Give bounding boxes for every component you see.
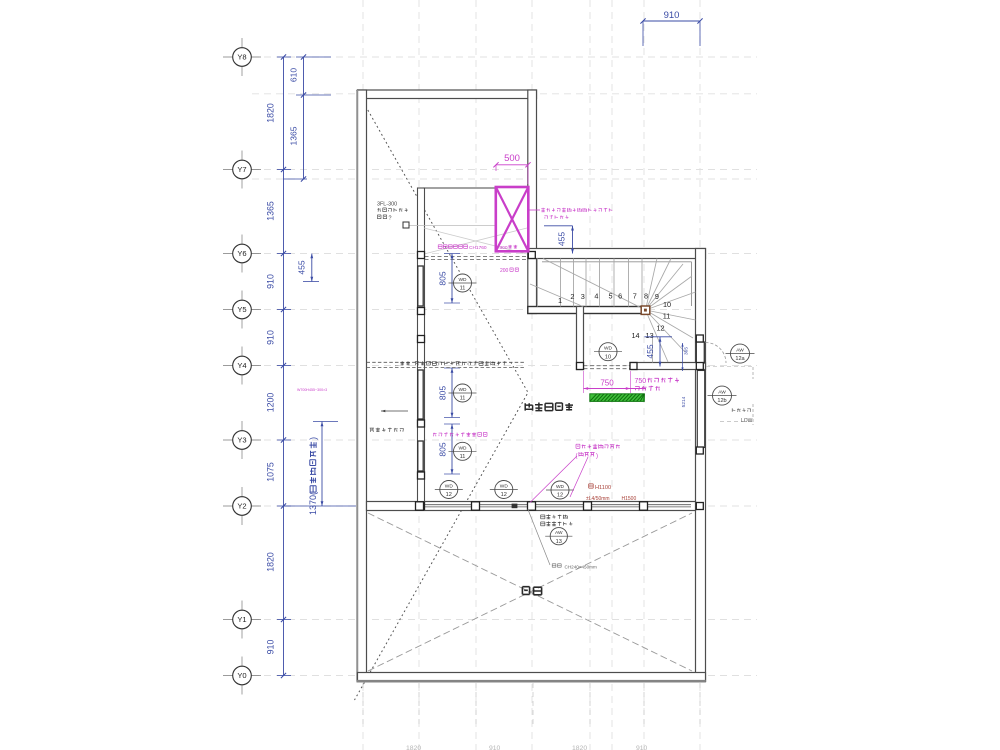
svg-text:H1100: H1100 [595, 485, 611, 491]
svg-text:13: 13 [556, 539, 562, 545]
svg-text:4: 4 [594, 292, 598, 301]
svg-text:1075: 1075 [266, 462, 276, 482]
svg-text:CH1760: CH1760 [469, 245, 487, 251]
svg-text:): ) [308, 437, 318, 440]
svg-text:1200: 1200 [266, 393, 276, 413]
svg-text:1365: 1365 [289, 126, 299, 145]
svg-text:WD: WD [459, 387, 468, 393]
svg-text:WD: WD [556, 484, 565, 490]
svg-text:6: 6 [618, 292, 622, 301]
svg-text:2: 2 [570, 292, 574, 301]
svg-text:805: 805 [438, 442, 448, 456]
svg-text:610: 610 [289, 68, 299, 82]
svg-text:805: 805 [438, 271, 448, 285]
svg-text:11: 11 [663, 312, 671, 321]
svg-text:(: ( [576, 454, 578, 460]
svg-text:10: 10 [605, 354, 611, 360]
svg-text:11: 11 [460, 454, 466, 460]
svg-text:WD: WD [500, 484, 509, 490]
svg-text:WD: WD [459, 445, 468, 451]
svg-text:12a: 12a [735, 356, 745, 362]
svg-text:5214: 5214 [681, 396, 687, 407]
svg-text:1820: 1820 [266, 103, 276, 123]
svg-text:910: 910 [266, 640, 276, 655]
svg-text:Y1: Y1 [237, 615, 246, 624]
svg-text:750: 750 [600, 379, 614, 388]
svg-text:13: 13 [646, 331, 654, 340]
svg-text:AW: AW [555, 530, 563, 536]
svg-text:300: 300 [500, 245, 508, 251]
svg-text:WD: WD [445, 484, 454, 490]
svg-text:±L4/50mm: ±L4/50mm [586, 496, 610, 502]
svg-text:365: 365 [684, 347, 690, 355]
svg-text:14: 14 [631, 331, 639, 340]
svg-text:910: 910 [489, 745, 501, 750]
svg-text:200: 200 [500, 268, 509, 274]
svg-text:1820: 1820 [406, 745, 421, 750]
svg-text:12b: 12b [717, 398, 726, 404]
svg-text:LOW: LOW [741, 418, 753, 424]
svg-text:Y2: Y2 [237, 502, 246, 511]
svg-text:W700H455~300×3: W700H455~300×3 [297, 388, 327, 392]
svg-text:455: 455 [557, 232, 567, 246]
svg-text:12: 12 [501, 492, 507, 498]
svg-text:11: 11 [460, 286, 466, 292]
svg-text:3: 3 [581, 292, 585, 301]
svg-text:H1500: H1500 [622, 496, 637, 502]
svg-text:10: 10 [663, 300, 671, 309]
svg-text:8: 8 [644, 292, 648, 301]
svg-text:7: 7 [633, 292, 637, 301]
svg-text:11: 11 [460, 396, 466, 402]
svg-text:): ) [596, 454, 598, 460]
svg-text:Y7: Y7 [237, 165, 246, 174]
svg-text:910: 910 [636, 745, 648, 750]
svg-text:1820: 1820 [266, 552, 276, 572]
svg-text:1370(: 1370( [308, 492, 318, 515]
svg-text:805: 805 [438, 386, 448, 400]
svg-text:500: 500 [504, 153, 520, 164]
svg-text:Y3: Y3 [237, 436, 246, 445]
svg-text:1820: 1820 [572, 745, 587, 750]
svg-text:910: 910 [664, 10, 680, 21]
svg-text:WD: WD [604, 346, 613, 352]
svg-text:12: 12 [656, 324, 664, 333]
svg-text:12: 12 [557, 493, 563, 499]
svg-text:9: 9 [655, 292, 659, 301]
svg-text:1365: 1365 [266, 201, 276, 221]
svg-text:AW: AW [736, 348, 744, 354]
svg-text:3FL-300: 3FL-300 [377, 201, 397, 207]
svg-text:AW: AW [718, 390, 726, 396]
svg-text:←: ← [394, 363, 400, 369]
svg-text:1: 1 [558, 296, 562, 305]
svg-text:CH240×450mm: CH240×450mm [565, 565, 597, 570]
svg-text:WD: WD [459, 277, 468, 283]
svg-text:Y6: Y6 [237, 249, 246, 258]
svg-text:12: 12 [446, 492, 452, 498]
svg-text:5: 5 [608, 292, 612, 301]
svg-text:910: 910 [266, 274, 276, 289]
svg-text:455: 455 [645, 344, 655, 358]
svg-text:910: 910 [266, 330, 276, 345]
svg-text:Y5: Y5 [237, 305, 246, 314]
svg-text:Y8: Y8 [237, 53, 246, 62]
svg-text:?: ? [389, 216, 392, 222]
svg-text:Y0: Y0 [237, 671, 246, 680]
svg-text:750: 750 [635, 378, 647, 385]
svg-text:455: 455 [297, 260, 307, 274]
svg-text:Y4: Y4 [237, 361, 246, 370]
